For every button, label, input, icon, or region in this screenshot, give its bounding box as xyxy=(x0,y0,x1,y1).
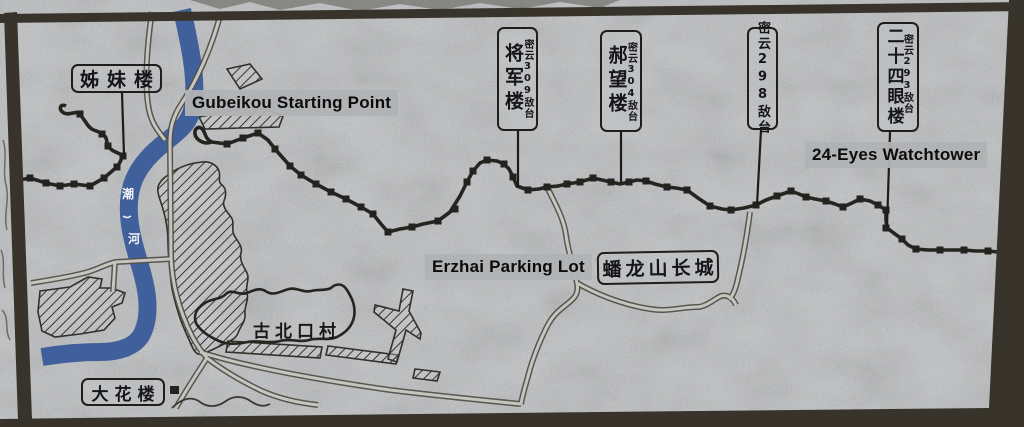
miyun-298-tower-label: 密云298敌台 xyxy=(747,27,778,130)
24-eyes-watchtower-label: 24-Eyes Watchtower xyxy=(805,142,987,168)
gubeikou-village-label: 古北口村 xyxy=(253,317,341,342)
haowang-tower-name: 郝望楼 xyxy=(607,45,626,117)
dahua-tower-label: 大花楼 xyxy=(81,378,165,406)
stone-map-sign: 姊妹楼 Gubeikou Starting Point 将军楼 密云309敌台 … xyxy=(0,0,1024,427)
jiangjun-tower-subtitle: 密云309敌台 xyxy=(522,39,532,119)
river-name-char-he: 河 xyxy=(128,230,140,247)
panlongshan-wall-label: 蟠龙山长城 xyxy=(597,250,720,285)
gubeikou-starting-point-label: Gubeikou Starting Point xyxy=(185,90,398,116)
dahua-tower-marker xyxy=(170,386,179,394)
river-name-char-chao: 潮 xyxy=(122,185,134,202)
miyun-298-tower-name: 密云298敌台 xyxy=(756,21,769,136)
twentyfour-eyes-tower-label: 二十四眼楼 密云293敌台 xyxy=(877,22,919,132)
jiangjun-tower-name: 将军楼 xyxy=(503,43,522,115)
zimei-tower-label: 姊妹楼 xyxy=(71,64,162,93)
twentyfour-eyes-tower-name: 二十四眼楼 xyxy=(885,27,902,127)
haowang-tower-label: 郝望楼 密云304敌台 xyxy=(600,30,642,132)
erzhai-parking-lot-label: Erzhai Parking Lot xyxy=(425,254,592,280)
jiangjun-tower-label: 将军楼 密云309敌台 xyxy=(497,27,538,131)
twentyfour-eyes-tower-subtitle: 密云293敌台 xyxy=(902,34,912,114)
haowang-tower-subtitle: 密云304敌台 xyxy=(626,42,636,122)
